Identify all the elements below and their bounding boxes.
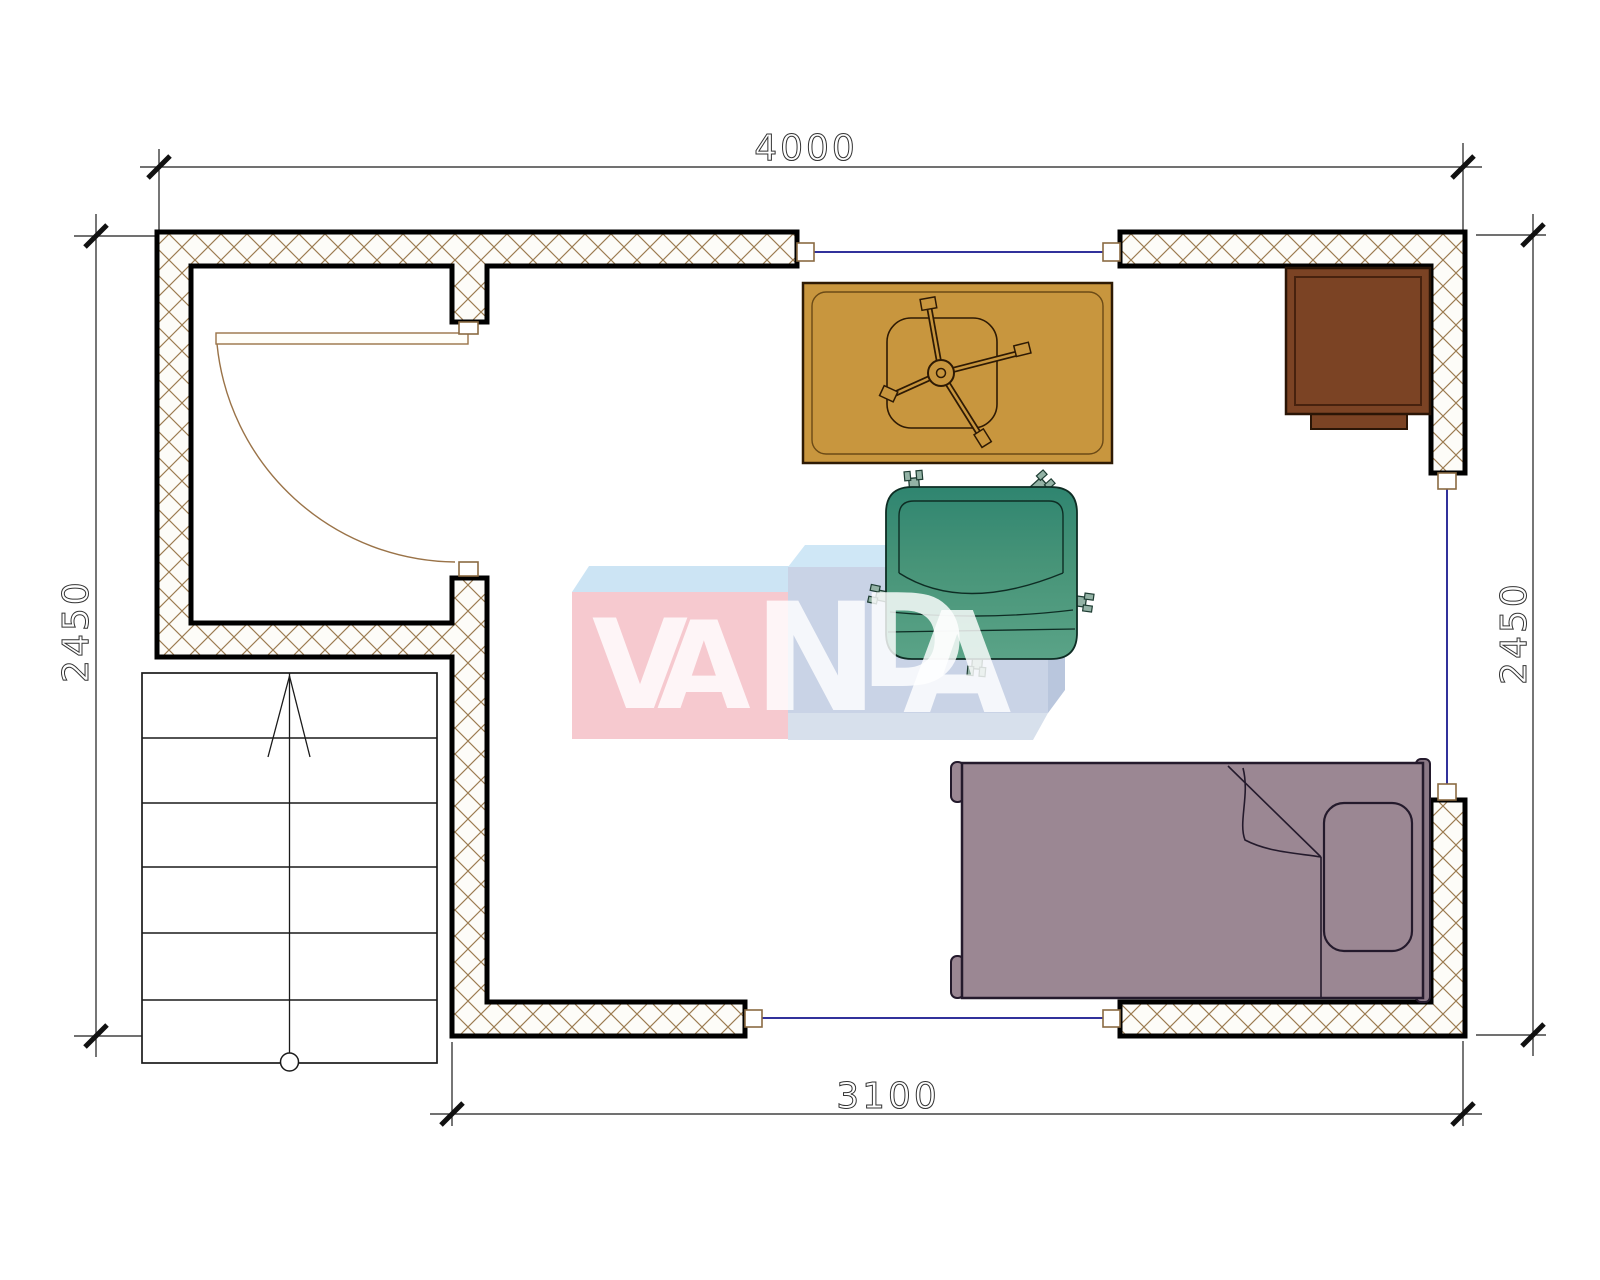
nightstand-cabinet — [1286, 268, 1430, 429]
door-leaf — [216, 333, 468, 344]
window-bottom — [745, 1010, 1120, 1027]
single-bed — [951, 759, 1430, 1002]
logo-letter-a2: A — [903, 583, 1011, 746]
logo-letter-a1: A — [657, 596, 751, 737]
window-right — [1438, 473, 1456, 800]
door-swing-arc — [217, 344, 455, 562]
dimension-top: 4000 — [140, 128, 1482, 230]
window-frame-marker — [745, 1010, 762, 1027]
window-frame-marker — [1438, 473, 1456, 489]
door-with-swing — [216, 322, 478, 576]
cabinet-body — [1286, 268, 1430, 414]
door-jamb-marker — [459, 322, 478, 334]
dimension-bottom: 3100 — [430, 1041, 1482, 1126]
window-frame-marker — [1438, 784, 1456, 800]
window-frame-marker — [1103, 243, 1120, 261]
bed-mattress — [962, 763, 1423, 998]
desk-table — [803, 283, 1112, 463]
dimension-left: 2450 — [56, 214, 156, 1057]
dimension-right-value: 2450 — [1494, 581, 1535, 685]
window-top — [797, 243, 1120, 261]
door-jamb-marker — [459, 562, 478, 576]
dimension-bottom-value: 3100 — [836, 1076, 940, 1117]
chair-base-hub — [928, 360, 954, 386]
dimension-right: 2450 — [1476, 214, 1546, 1056]
dimension-left-value: 2450 — [56, 579, 97, 683]
table-top — [803, 283, 1112, 463]
vanda-watermark-text: V A N D A — [592, 568, 1011, 746]
window-frame-marker — [797, 243, 814, 261]
floor-plan-canvas: 4000 2450 2450 3100 — [0, 0, 1600, 1280]
staircase — [142, 673, 437, 1071]
window-frame-marker — [1103, 1010, 1120, 1027]
dimension-top-value: 4000 — [754, 128, 858, 169]
stair-start-marker — [281, 1053, 299, 1071]
